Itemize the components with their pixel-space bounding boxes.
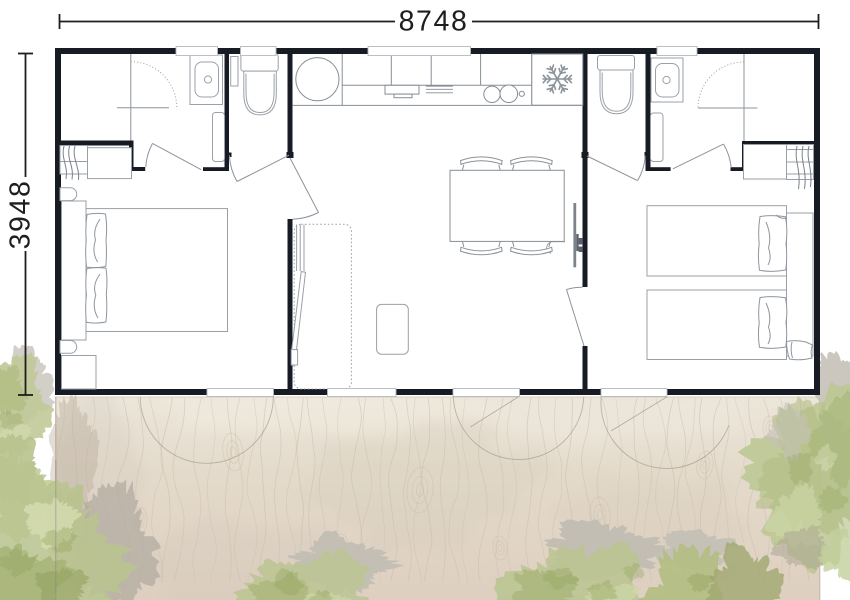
svg-text:3948: 3948	[5, 180, 37, 250]
svg-text:8748: 8748	[399, 6, 469, 38]
